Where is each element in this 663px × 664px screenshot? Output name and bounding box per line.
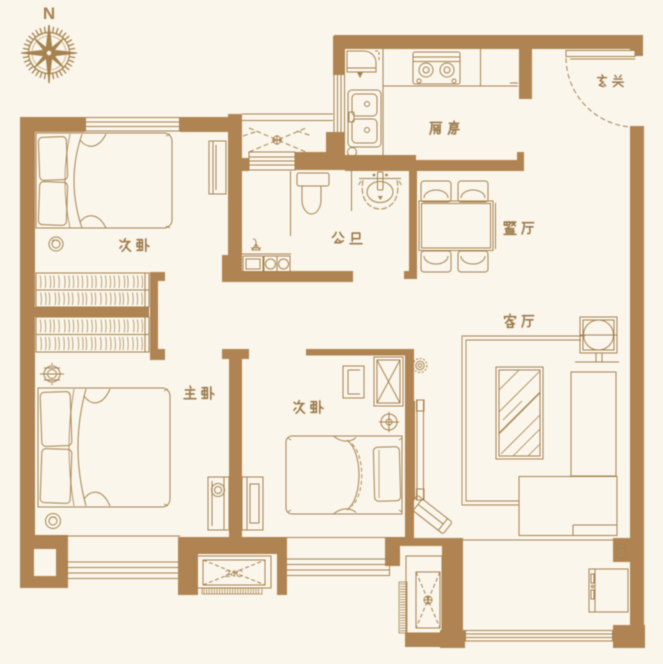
svg-text:24C: 24C	[225, 569, 243, 580]
svg-text:N: N	[43, 4, 55, 23]
